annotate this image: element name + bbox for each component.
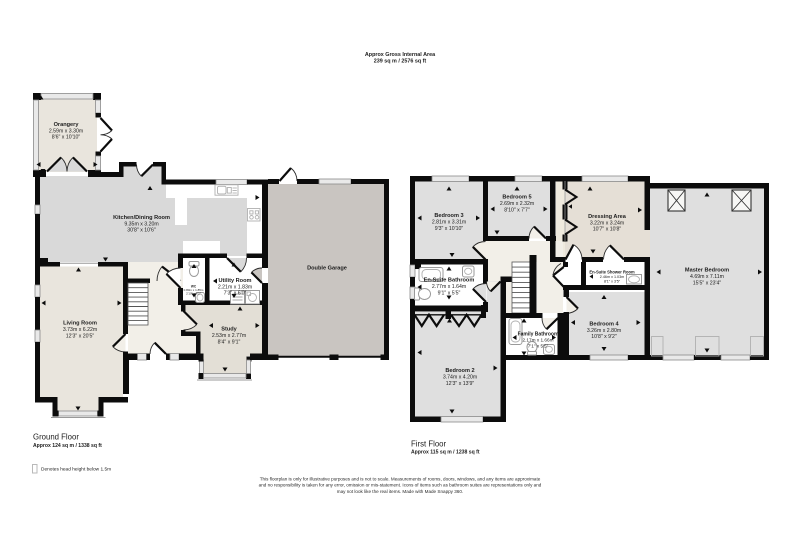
svg-text:8'6" x 10'10": 8'6" x 10'10"	[52, 134, 81, 140]
svg-text:Kitchen/Dining Room: Kitchen/Dining Room	[113, 215, 170, 221]
svg-text:10'8" x 9'2": 10'8" x 9'2"	[591, 334, 617, 340]
svg-text:En-Suite Shower Room: En-Suite Shower Room	[589, 269, 635, 274]
svg-text:En-Suite Bathroom: En-Suite Bathroom	[424, 278, 475, 284]
svg-text:Utility Room: Utility Room	[219, 278, 252, 284]
svg-text:2.17m x 1.66m: 2.17m x 1.66m	[522, 338, 553, 343]
svg-text:7'3" x 6'0": 7'3" x 6'0"	[224, 290, 247, 296]
svg-text:Bedroom 4: Bedroom 4	[589, 321, 619, 327]
svg-text:2.69m x 2.32m: 2.69m x 2.32m	[500, 201, 534, 207]
svg-text:8'1" x 3'5": 8'1" x 3'5"	[604, 279, 621, 283]
svg-text:Living Room: Living Room	[63, 321, 97, 327]
svg-text:9'1" x 5'5": 9'1" x 5'5"	[438, 290, 461, 296]
svg-text:15'5" x 23'4": 15'5" x 23'4"	[693, 280, 722, 286]
svg-text:10'7" x 10'8": 10'7" x 10'8"	[593, 226, 622, 232]
svg-text:Dressing Area: Dressing Area	[588, 214, 627, 220]
svg-text:Ground Floor: Ground Floor	[33, 432, 79, 441]
svg-text:Approx 115 sq m / 1238 sq ft: Approx 115 sq m / 1238 sq ft	[411, 450, 480, 456]
svg-text:30'8" x 10'6": 30'8" x 10'6"	[127, 227, 156, 233]
svg-text:may not look like the real ite: may not look like the real items. Made w…	[337, 489, 463, 494]
svg-text:2.77m x 1.64m: 2.77m x 1.64m	[432, 284, 466, 290]
svg-text:Denotes head height below 1.5m: Denotes head height below 1.5m	[41, 466, 111, 472]
svg-text:This floorplan is only for ill: This floorplan is only for illustrative …	[260, 476, 541, 481]
svg-text:12'3" x 13'9": 12'3" x 13'9"	[446, 381, 475, 387]
svg-text:2'10" x 6'1": 2'10" x 6'1"	[186, 292, 201, 296]
svg-text:First Floor: First Floor	[411, 439, 446, 448]
svg-text:and no responsibility is taken: and no responsibility is taken for any e…	[259, 483, 542, 488]
svg-text:8'4" x 9'1": 8'4" x 9'1"	[218, 339, 241, 345]
svg-text:Master Bedroom: Master Bedroom	[685, 267, 729, 273]
svg-text:4.69m x 7.11m: 4.69m x 7.11m	[690, 274, 724, 280]
svg-text:239 sq m / 2576 sq ft: 239 sq m / 2576 sq ft	[374, 58, 427, 64]
svg-text:3.74m x 4.20m: 3.74m x 4.20m	[443, 374, 477, 380]
svg-text:Approx 124 sq m / 1338 sq ft: Approx 124 sq m / 1338 sq ft	[33, 443, 102, 449]
svg-text:3.26m x 2.80m: 3.26m x 2.80m	[587, 328, 621, 334]
svg-text:9'3" x 10'10": 9'3" x 10'10"	[435, 226, 464, 232]
svg-text:Bedroom 5: Bedroom 5	[502, 195, 531, 201]
svg-text:7'1" x 5'5": 7'1" x 5'5"	[528, 343, 549, 348]
svg-text:2.53m x 2.77m: 2.53m x 2.77m	[212, 333, 246, 339]
svg-text:Double Garage: Double Garage	[307, 266, 347, 272]
svg-text:Bedroom 3: Bedroom 3	[434, 213, 463, 219]
svg-text:Approx Gross Internal Area: Approx Gross Internal Area	[365, 52, 436, 58]
svg-text:Study: Study	[221, 327, 237, 333]
svg-text:Orangery: Orangery	[54, 122, 80, 128]
svg-text:2.46m x 1.03m: 2.46m x 1.03m	[600, 275, 624, 279]
svg-text:3.73m x 6.22m: 3.73m x 6.22m	[63, 327, 97, 333]
svg-text:Bedroom 2: Bedroom 2	[445, 368, 474, 374]
svg-text:8'10" x 7'7": 8'10" x 7'7"	[504, 207, 530, 213]
svg-text:2.81m x 3.31m: 2.81m x 3.31m	[432, 219, 466, 225]
svg-text:12'3" x 20'5": 12'3" x 20'5"	[66, 333, 95, 339]
